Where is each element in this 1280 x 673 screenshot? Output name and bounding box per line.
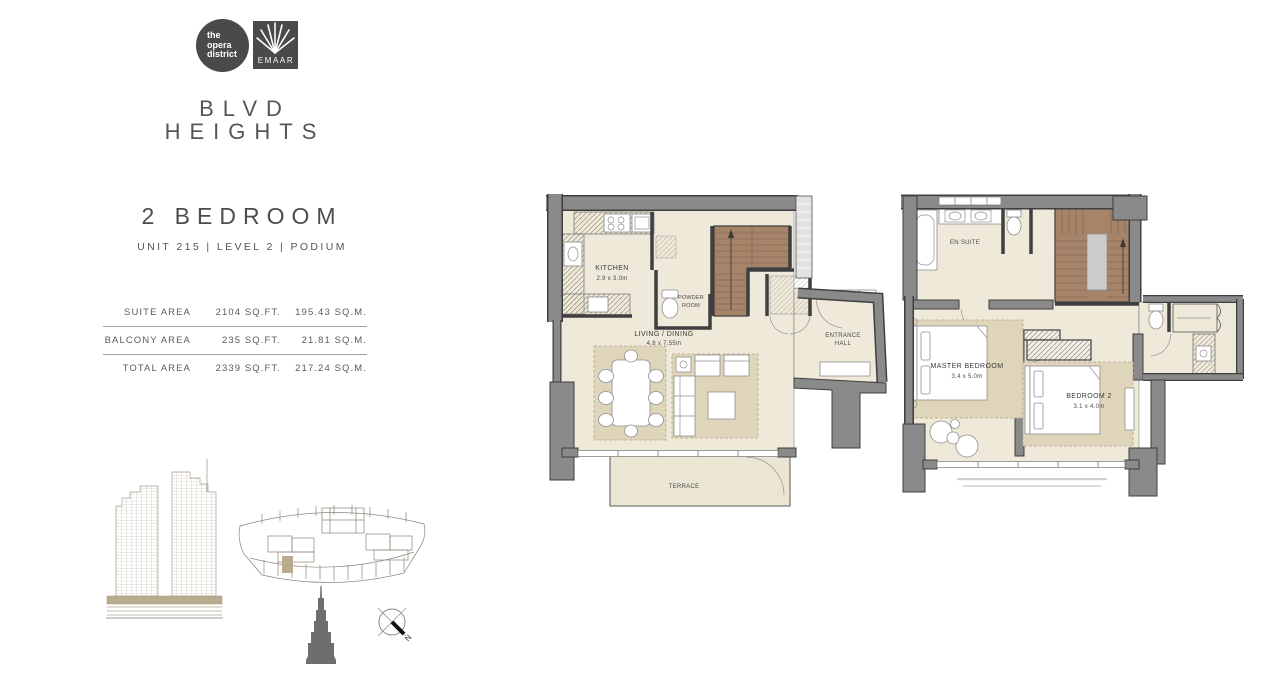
emaar-logo: EMAAR bbox=[253, 21, 298, 69]
area-sqft: 235 SQ.FT. bbox=[191, 335, 281, 346]
en-suite-label: EN SUITE bbox=[950, 240, 980, 246]
window-band-upper bbox=[923, 460, 1139, 487]
area-sqft: 2339 SQ.FT. bbox=[191, 363, 281, 374]
podium-band bbox=[106, 596, 223, 618]
floorplan-lower-level: TERRACE bbox=[548, 196, 895, 514]
area-row-balcony: BALCONY AREA 235 SQ.FT. 21.81 SQ.M. bbox=[103, 326, 367, 354]
unit-details: UNIT 215 | LEVEL 2 | PODIUM bbox=[108, 241, 376, 253]
unit-type-heading: 2 BEDROOM bbox=[108, 203, 376, 230]
toilet bbox=[662, 298, 678, 318]
master-bedroom-label: MASTER BEDROOM bbox=[931, 363, 1004, 370]
area-sqft: 2104 SQ.FT. bbox=[191, 307, 281, 318]
master-bedroom-dims: 3.4 x 5.0m bbox=[951, 374, 982, 380]
building-elevation-drawing bbox=[106, 456, 224, 620]
area-table: SUITE AREA 2104 SQ.FT. 195.43 SQ.M. BALC… bbox=[103, 299, 367, 382]
opera-logo-line: district bbox=[207, 50, 249, 60]
powder-room-label: POWDER bbox=[678, 295, 704, 301]
stove bbox=[604, 214, 630, 232]
wardrobe bbox=[1027, 340, 1091, 360]
area-label: SUITE AREA bbox=[103, 307, 191, 318]
bedroom2-dims: 3.1 x 4.0m bbox=[1073, 404, 1104, 410]
sofa-set bbox=[672, 354, 758, 438]
powder-room-label2: ROOM bbox=[682, 303, 700, 309]
highlighted-unit-location bbox=[282, 556, 293, 573]
terrace-label: TERRACE bbox=[669, 484, 700, 490]
entrance-hall-label: ENTRANCE bbox=[825, 333, 860, 339]
tower-left bbox=[116, 486, 158, 596]
area-sqm: 195.43 SQ.M. bbox=[281, 307, 367, 318]
living-dining-label: LIVING / DINING bbox=[634, 331, 693, 338]
kitchen-dims: 2.9 x 3.0m bbox=[596, 276, 627, 282]
area-row-total: TOTAL AREA 2339 SQ.FT. 217.24 SQ.M. bbox=[103, 354, 367, 382]
living-dining-dims: 4.8 x 7.55m bbox=[647, 341, 682, 347]
area-sqm: 21.81 SQ.M. bbox=[281, 335, 367, 346]
area-sqm: 217.24 SQ.M. bbox=[281, 363, 367, 374]
area-row-suite: SUITE AREA 2104 SQ.FT. 195.43 SQ.M. bbox=[103, 299, 367, 326]
tower-right bbox=[172, 459, 216, 596]
floorplan-upper-level: EN SUITE MASTER BEDROOM bbox=[903, 196, 1246, 520]
site-outline bbox=[239, 505, 425, 583]
emaar-sunburst-icon bbox=[253, 22, 298, 56]
burj-khalifa-silhouette bbox=[306, 586, 336, 664]
console-bench bbox=[820, 362, 870, 376]
project-title: BLVD HEIGHTS bbox=[135, 97, 355, 143]
kitchen-label: KITCHEN bbox=[595, 265, 629, 272]
project-title-line1: BLVD bbox=[135, 97, 355, 120]
staircase-upper bbox=[1055, 208, 1139, 304]
area-label: BALCONY AREA bbox=[103, 335, 191, 346]
compass-north-label: N bbox=[403, 633, 414, 643]
entrance-hall-label2: HALL bbox=[835, 341, 852, 347]
emaar-logo-label: EMAAR bbox=[258, 56, 294, 65]
area-label: TOTAL AREA bbox=[103, 363, 191, 374]
kitchen-sink bbox=[564, 242, 582, 266]
site-key-plan bbox=[234, 494, 430, 594]
project-title-line2: HEIGHTS bbox=[135, 120, 355, 143]
toilet bbox=[1007, 217, 1021, 235]
bedroom2-label: BEDROOM 2 bbox=[1066, 393, 1112, 400]
toilet2 bbox=[1149, 311, 1163, 329]
terrace-area: TERRACE bbox=[610, 456, 790, 506]
compass-icon: N bbox=[372, 602, 416, 646]
dining-set bbox=[594, 346, 666, 440]
opera-district-logo: the opera district bbox=[196, 19, 249, 72]
